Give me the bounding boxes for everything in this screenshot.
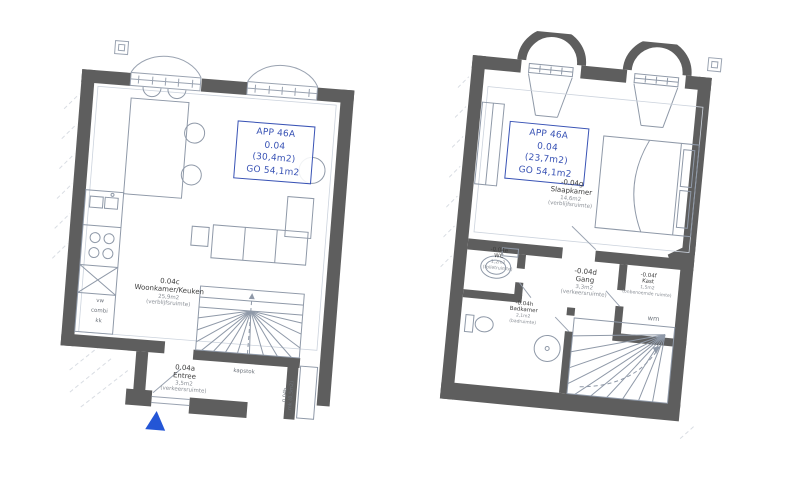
room-label-kast: -0.04f Kast 1,5m2 (onbenoemde ruimte)	[619, 270, 677, 299]
ground-plan-drawing	[36, 23, 368, 463]
dining-table	[124, 86, 208, 200]
room-label-entree: 0.04a Entree 3,5m2 (verkeersruimte)	[143, 361, 225, 397]
exterior-hatching	[41, 93, 149, 411]
apartment-label-box: APP 46A 0.04 (30,4m2) GO 54,1m2	[233, 120, 315, 184]
upper-floorplan: APP 46A 0.04 (23,7m2) GO 54,1m2 -0.04g S…	[425, 24, 732, 450]
shower-drain	[533, 334, 561, 362]
ground-floorplan: APP 46A 0.04 (30,4m2) GO 54,1m2 0.04c Wo…	[36, 23, 368, 463]
chimney-marker-icon	[708, 58, 722, 72]
chimney-marker-icon	[115, 41, 129, 55]
upper-plan-drawing	[425, 24, 732, 450]
entrance-arrow-icon	[145, 410, 166, 431]
floorplan-canvas: APP 46A 0.04 (30,4m2) GO 54,1m2 0.04c Wo…	[0, 0, 800, 500]
meter-closet	[297, 366, 318, 419]
room-label-wc: -0.04e WC 1,2m2 (toiletruimte)	[471, 245, 525, 274]
